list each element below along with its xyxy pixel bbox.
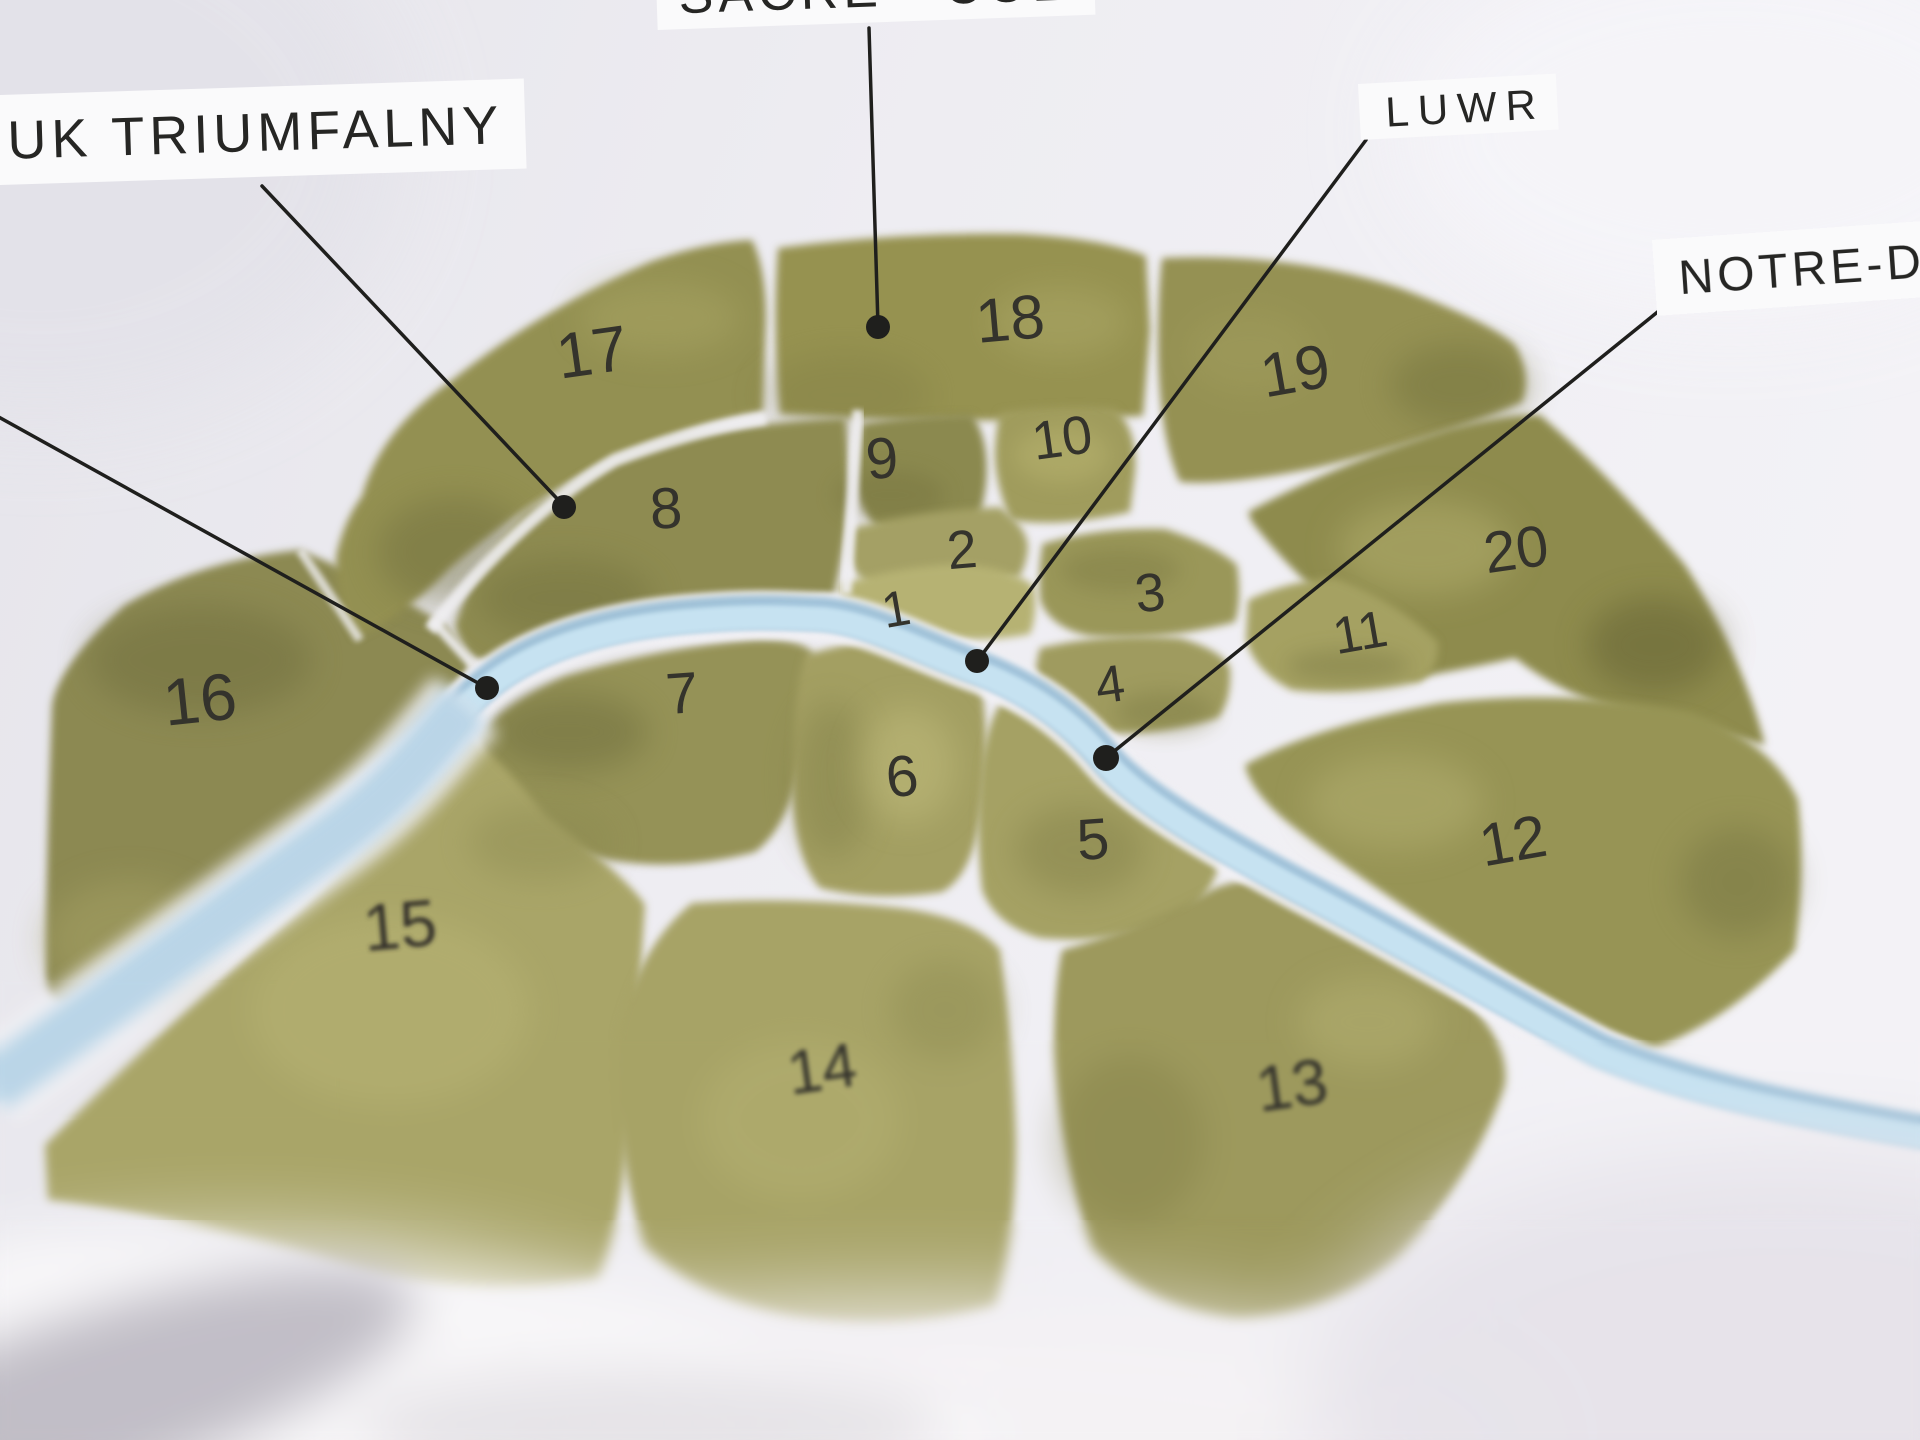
svg-text:2: 2 <box>945 519 980 581</box>
svg-text:10: 10 <box>1028 404 1096 472</box>
svg-text:12: 12 <box>1474 802 1551 880</box>
svg-text:3: 3 <box>1132 562 1168 625</box>
svg-text:20: 20 <box>1480 513 1553 586</box>
svg-text:5: 5 <box>1075 806 1112 873</box>
svg-text:7: 7 <box>664 660 701 727</box>
svg-text:8: 8 <box>648 475 684 542</box>
svg-text:LUWR: LUWR <box>1384 80 1546 135</box>
svg-text:19: 19 <box>1255 332 1335 412</box>
svg-text:18: 18 <box>973 282 1048 357</box>
svg-text:17: 17 <box>552 311 633 392</box>
svg-text:16: 16 <box>160 658 241 739</box>
svg-text:11: 11 <box>1329 600 1392 666</box>
svg-text:15: 15 <box>360 885 440 965</box>
svg-text:6: 6 <box>883 742 922 810</box>
svg-text:9: 9 <box>863 425 901 493</box>
